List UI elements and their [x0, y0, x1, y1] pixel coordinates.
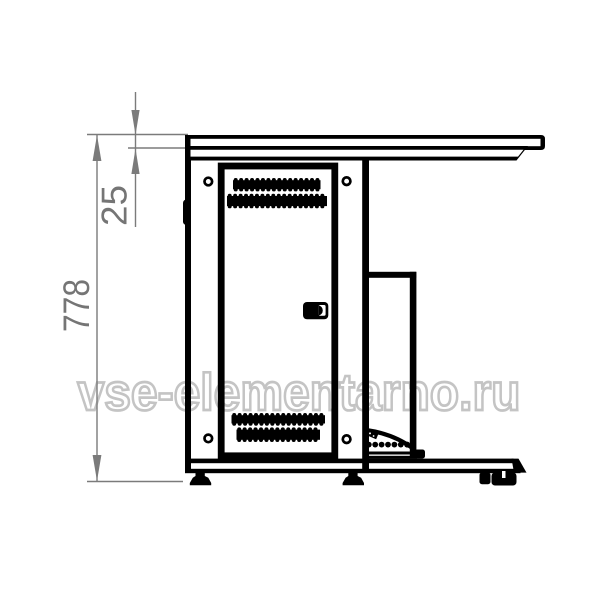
svg-text:25: 25 [94, 185, 135, 226]
svg-text:778: 778 [56, 279, 97, 332]
